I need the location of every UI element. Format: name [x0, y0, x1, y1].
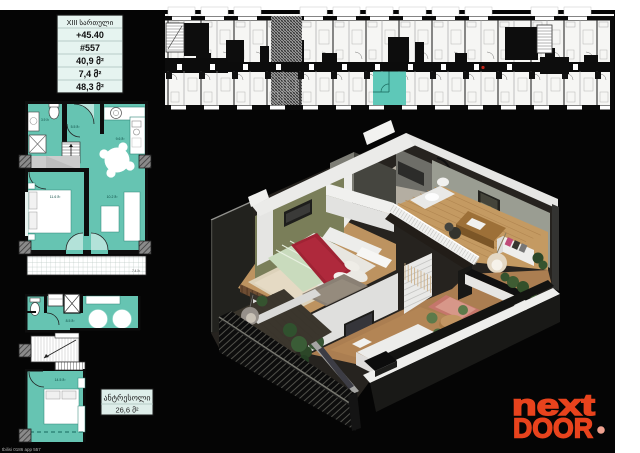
svg-text:5.5 მ²: 5.5 მ²	[71, 124, 81, 129]
svg-text:14.5 მ²: 14.5 მ²	[55, 377, 67, 382]
svg-text:+45.40: +45.40	[76, 30, 104, 40]
svg-text:DOOR: DOOR	[513, 413, 593, 444]
svg-text:ანტრესოლი: ანტრესოლი	[103, 394, 150, 403]
svg-text:48,3 მ²: 48,3 მ²	[76, 82, 104, 92]
svg-text:7.4 მ²: 7.4 მ²	[132, 269, 140, 273]
svg-text:XIII სართული: XIII სართული	[67, 18, 114, 27]
svg-text:11.6 მ²: 11.6 მ²	[50, 194, 61, 199]
svg-text:40,9 მ²: 40,9 მ²	[76, 56, 104, 66]
svg-text:tbilisi 0186 app 557: tbilisi 0186 app 557	[2, 447, 41, 452]
svg-text:8.5 მ²: 8.5 მ²	[66, 318, 76, 323]
svg-text:9.6 მ²: 9.6 მ²	[116, 136, 126, 141]
svg-text:7,4 მ²: 7,4 მ²	[79, 69, 102, 79]
svg-text:26,6 მ²: 26,6 მ²	[115, 406, 139, 415]
svg-text:#557: #557	[80, 43, 100, 53]
svg-text:10.2 მ²: 10.2 მ²	[107, 194, 119, 199]
svg-text:3.9 მ²: 3.9 მ²	[41, 118, 49, 122]
